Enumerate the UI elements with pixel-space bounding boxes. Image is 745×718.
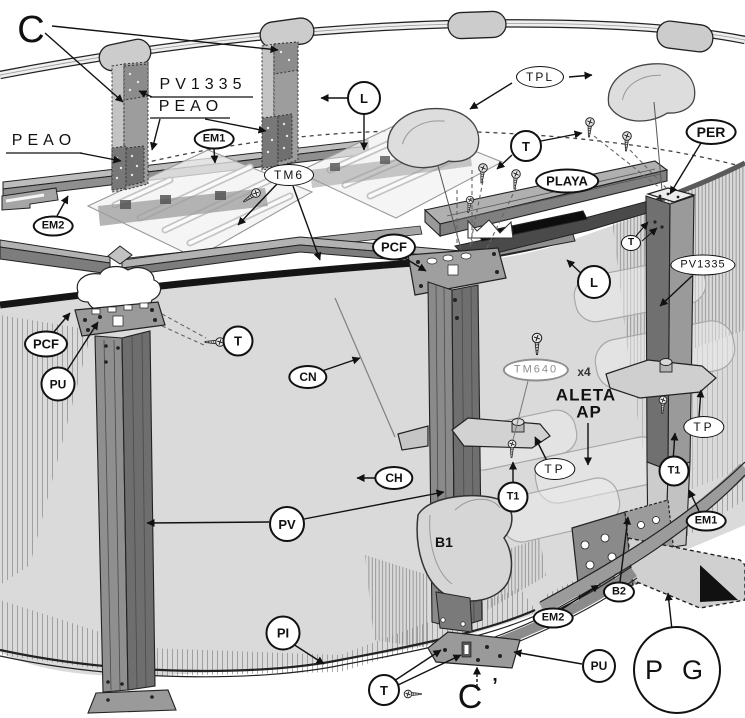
screw-icon — [585, 117, 595, 137]
callout-t-left: T — [223, 326, 254, 357]
callout-per: PER — [686, 119, 737, 145]
callout-tm6: TM6 — [264, 164, 314, 186]
callout-pu-bottom: PU — [582, 649, 616, 683]
callout-playa: PLAYA — [535, 169, 599, 194]
callout-pcf-left: PCF — [24, 331, 68, 358]
callout-pi: PI — [266, 616, 301, 651]
ghost-post-right — [262, 42, 298, 170]
callout-c-prime: C — [458, 680, 483, 714]
rail-connector-cap — [656, 20, 715, 54]
screw-icon — [622, 131, 632, 151]
callout-c-prime-mark: ’ — [492, 676, 498, 696]
callout-em2-bottom: EM2 — [533, 608, 574, 629]
callout-l-top: L — [347, 81, 381, 115]
callout-aleta-line1: ALETA — [556, 387, 616, 404]
callout-c-top: C — [17, 11, 44, 49]
callout-pv1335-right: PV1335 — [670, 255, 735, 276]
callout-tm640: TM640 — [503, 359, 569, 382]
callout-t-bottom: T — [368, 674, 400, 706]
callout-em1-right: EM1 — [686, 511, 727, 532]
callout-peao-top: PEAO — [159, 99, 223, 115]
callout-em1-top: EM1 — [194, 129, 235, 150]
callout-t1-right: T1 — [659, 456, 690, 487]
callout-t1-left: T1 — [498, 482, 529, 513]
tpl-cap-left — [388, 109, 479, 168]
ghost-post-left — [112, 62, 148, 192]
callout-t-top: T — [510, 130, 542, 162]
callout-tp-right: TP — [683, 416, 724, 438]
callout-peao-left: PEAO — [12, 133, 76, 149]
screw-icon — [510, 169, 521, 189]
callout-pv1335-top: PV1335 — [160, 77, 247, 93]
callout-tm640-qty: x4 — [577, 366, 590, 378]
rail-connector-cap — [448, 11, 507, 39]
tpl-cap-right — [606, 61, 696, 123]
screw-icon — [404, 690, 421, 698]
callout-ch: CH — [374, 466, 413, 490]
callout-em2-left: EM2 — [33, 216, 74, 237]
callout-b2: B2 — [603, 582, 635, 603]
callout-tp-left: TP — [534, 458, 575, 480]
callout-pv: PV — [269, 506, 305, 542]
callout-l-right: L — [577, 265, 611, 299]
callout-tpl: TPL — [516, 66, 564, 88]
callout-pcf-center: PCF — [372, 234, 416, 261]
exploded-assembly-diagram: C PV1335 PEAO PEAO EM1 EM2 TM6 L TPL T P… — [0, 0, 745, 718]
callout-cn: CN — [288, 365, 327, 389]
callout-aleta-line2: AP — [576, 404, 602, 421]
callout-pu-left: PU — [41, 367, 76, 402]
callout-pg: P G — [633, 626, 721, 714]
callout-b1: B1 — [435, 535, 453, 549]
callout-t-right-small: T — [621, 235, 641, 251]
